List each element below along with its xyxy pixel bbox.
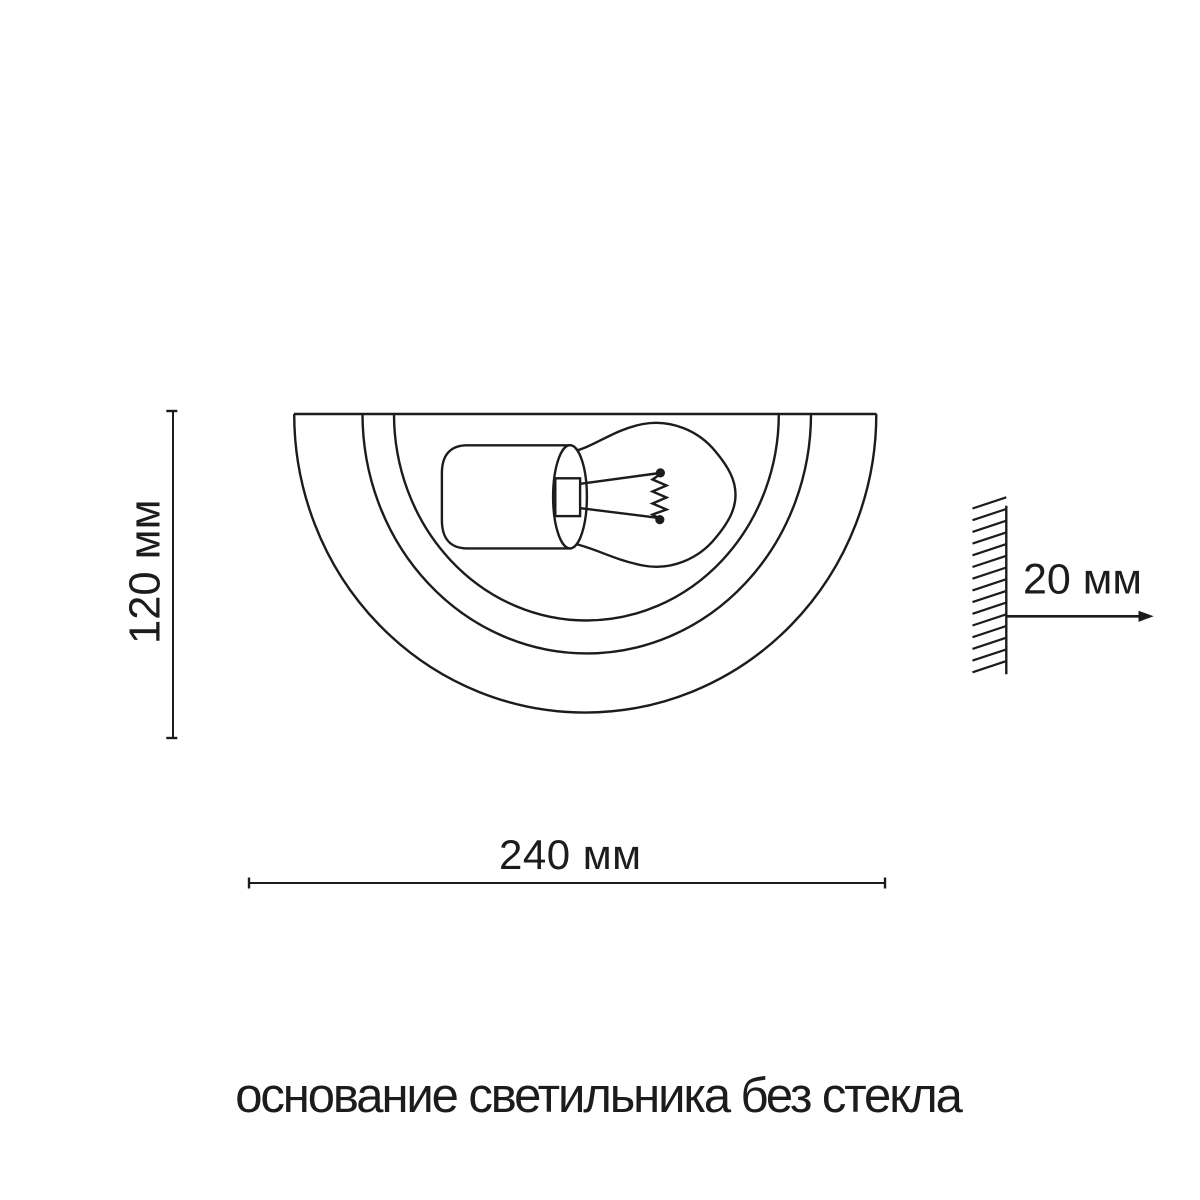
svg-text:240 мм: 240 мм (499, 831, 642, 878)
svg-text:20 мм: 20 мм (1023, 556, 1142, 604)
svg-text:120 мм: 120 мм (122, 500, 170, 644)
svg-text:основание светильника без стек: основание светильника без стекла (235, 1069, 963, 1123)
